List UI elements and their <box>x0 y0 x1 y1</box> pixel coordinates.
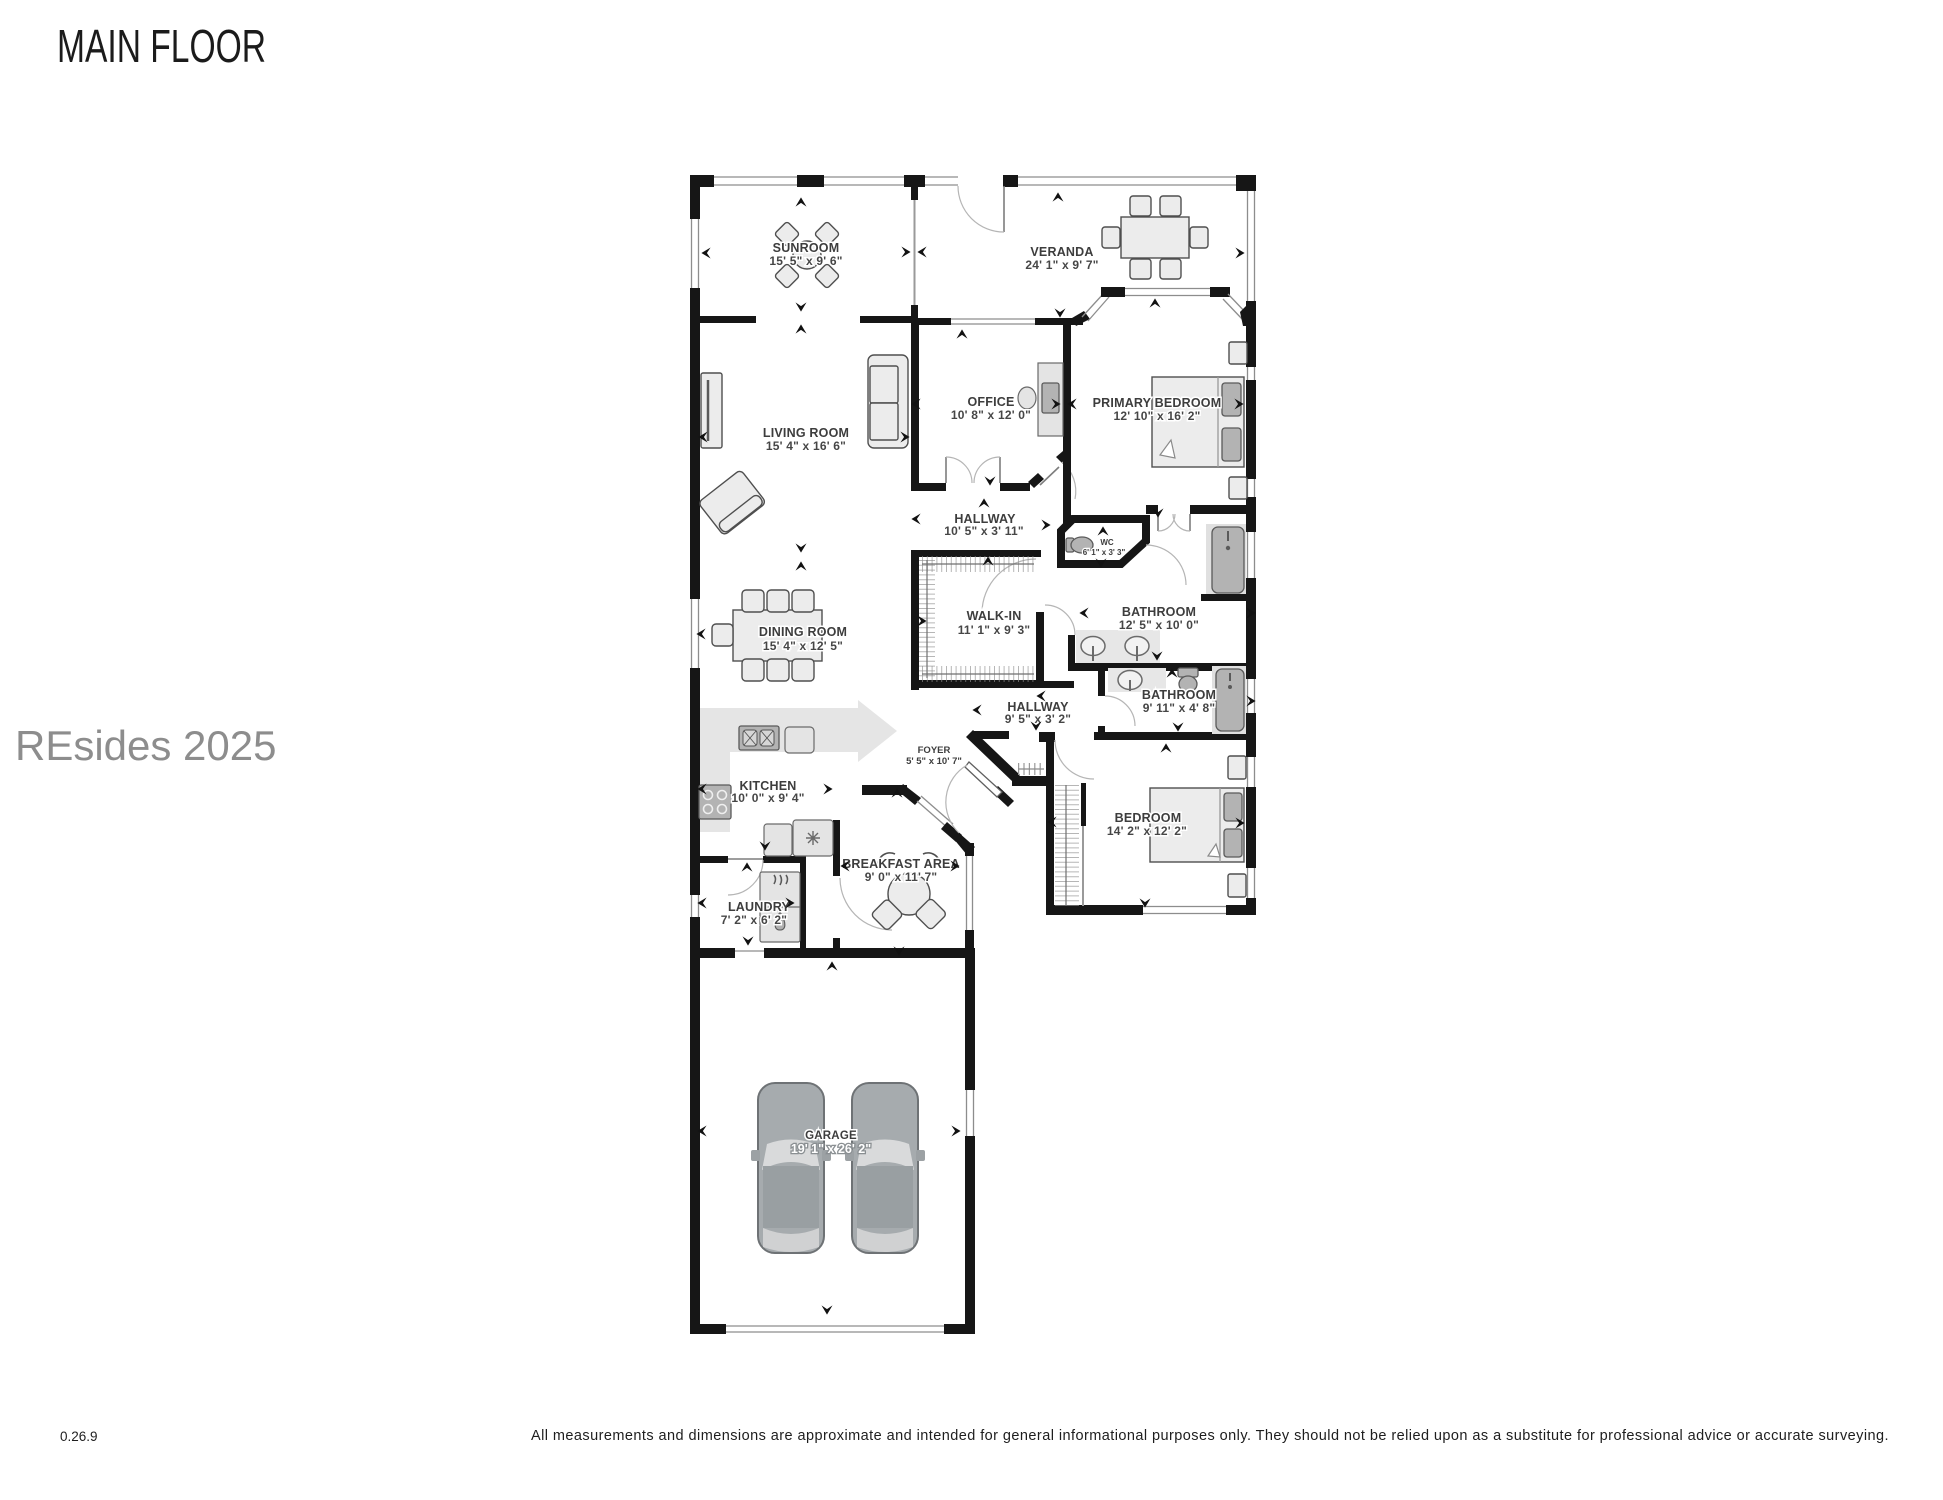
svg-text:VERANDA: VERANDA <box>1030 245 1093 259</box>
svg-text:10' 0" x 9' 4": 10' 0" x 9' 4" <box>731 791 804 805</box>
svg-text:WALK-IN: WALK-IN <box>967 609 1022 623</box>
svg-text:15' 5" x 9' 6": 15' 5" x 9' 6" <box>769 254 842 268</box>
svg-text:12' 10" x 16' 2": 12' 10" x 16' 2" <box>1113 409 1200 423</box>
svg-text:10' 8" x 12' 0": 10' 8" x 12' 0" <box>951 408 1031 422</box>
svg-text:15' 4" x 16' 6": 15' 4" x 16' 6" <box>766 439 846 453</box>
svg-text:14' 2" x 12' 2": 14' 2" x 12' 2" <box>1107 824 1187 838</box>
svg-text:LAUNDRY: LAUNDRY <box>728 900 791 914</box>
svg-text:GARAGE: GARAGE <box>805 1130 857 1142</box>
svg-text:BATHROOM: BATHROOM <box>1142 688 1216 702</box>
svg-text:15' 4" x 12' 5": 15' 4" x 12' 5" <box>763 639 843 653</box>
svg-text:9' 11" x 4' 8": 9' 11" x 4' 8" <box>1143 701 1216 715</box>
svg-text:OFFICE: OFFICE <box>967 395 1014 409</box>
svg-text:PRIMARY BEDROOM: PRIMARY BEDROOM <box>1093 396 1222 410</box>
svg-text:BATHROOM: BATHROOM <box>1122 605 1196 619</box>
svg-text:5' 5" x 10' 7": 5' 5" x 10' 7" <box>906 756 962 767</box>
svg-text:WC: WC <box>1100 538 1114 547</box>
svg-text:19' 1" x 26' 2": 19' 1" x 26' 2" <box>791 1142 871 1156</box>
svg-text:24' 1" x 9' 7": 24' 1" x 9' 7" <box>1025 258 1098 272</box>
svg-text:11' 1" x 9' 3": 11' 1" x 9' 3" <box>958 623 1031 637</box>
svg-text:9' 0" x 11' 7": 9' 0" x 11' 7" <box>865 870 938 884</box>
svg-text:SUNROOM: SUNROOM <box>773 241 840 255</box>
svg-text:7' 2" x 6' 2": 7' 2" x 6' 2" <box>721 913 787 927</box>
svg-text:6' 1" x 3' 3": 6' 1" x 3' 3" <box>1083 548 1126 557</box>
svg-text:BEDROOM: BEDROOM <box>1115 811 1182 825</box>
svg-text:12' 5" x 10' 0": 12' 5" x 10' 0" <box>1119 618 1199 632</box>
svg-text:BREAKFAST AREA: BREAKFAST AREA <box>842 857 960 871</box>
svg-text:DINING ROOM: DINING ROOM <box>759 625 847 639</box>
svg-text:FOYER: FOYER <box>918 745 951 756</box>
svg-text:10' 5" x 3' 11": 10' 5" x 3' 11" <box>944 524 1023 538</box>
svg-text:LIVING ROOM: LIVING ROOM <box>763 426 849 440</box>
